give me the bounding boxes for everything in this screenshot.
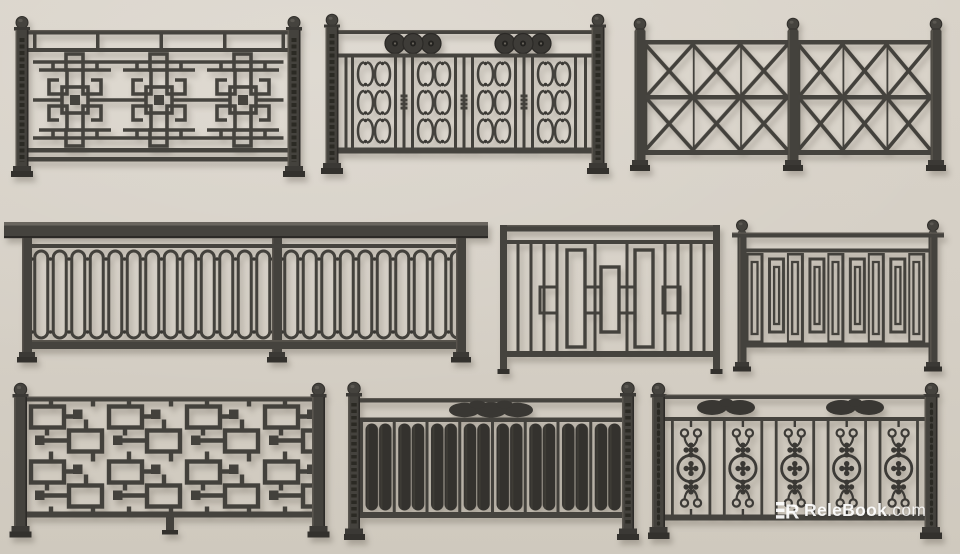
railing-nested-rectangles — [727, 219, 960, 375]
railing-chinese-lattice — [8, 12, 308, 180]
railing-paddle-slats — [344, 381, 641, 546]
bottom-rail — [507, 351, 713, 357]
handrail-shelf — [4, 222, 488, 238]
loop-panel-right — [282, 249, 456, 340]
railing-scrollwork-discs — [320, 12, 610, 180]
picket-panel — [747, 253, 930, 343]
post-left — [11, 17, 33, 178]
cloud-ornament — [449, 401, 533, 418]
picket-panel — [517, 244, 706, 351]
scroll-panel — [345, 58, 588, 148]
bottom-rail — [27, 512, 312, 518]
cloud-ornaments — [697, 399, 884, 416]
brand-suffix: .com — [887, 500, 926, 520]
bottom-rail — [747, 343, 930, 348]
railing-cross-braced — [628, 14, 958, 178]
railing-oval-loops — [4, 220, 490, 370]
railing-staggered-rectangles — [497, 221, 723, 378]
watermark-text: ReleBook.com — [804, 500, 926, 521]
slat-panel — [360, 422, 622, 512]
center-foot — [162, 518, 178, 535]
fret-panel — [27, 402, 312, 512]
bottom-rail — [339, 148, 592, 154]
railing-fret-maze — [8, 381, 333, 545]
post-right — [283, 17, 305, 178]
relebook-logo-icon: R — [776, 498, 800, 523]
watermark: R ReleBook.com — [776, 498, 926, 523]
upper-rail — [32, 244, 456, 248]
lattice-panel — [33, 52, 284, 148]
loop-panel-left — [32, 249, 272, 340]
bottom-rail — [29, 157, 288, 162]
railing-catalog-image: R ReleBook.com — [0, 0, 960, 554]
frieze-dividers — [33, 32, 285, 50]
logo-letter: R — [785, 502, 800, 524]
bottom-rail — [360, 512, 622, 518]
disc-ornaments — [385, 34, 551, 54]
brand-name: ReleBook — [804, 500, 887, 520]
